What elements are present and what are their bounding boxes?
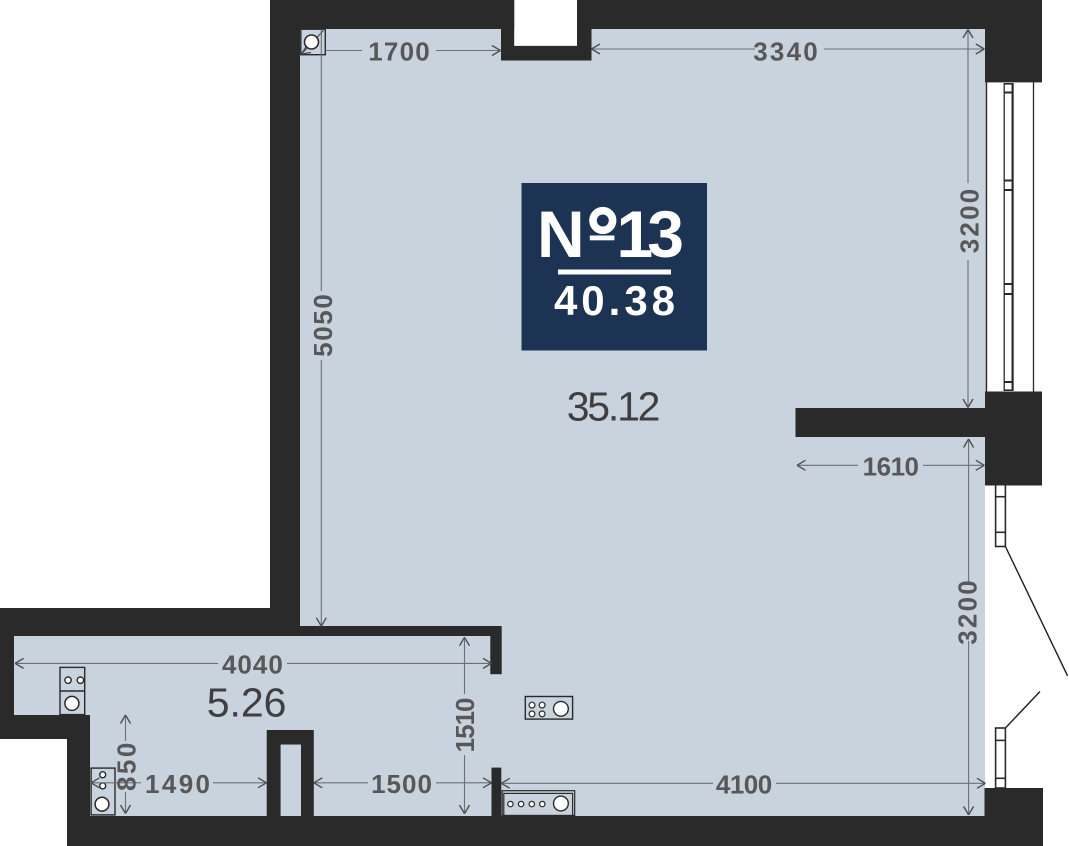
svg-text:3340: 3340 [753,36,820,66]
svg-text:1510: 1510 [450,698,480,752]
svg-text:4040: 4040 [222,650,284,680]
svg-text:4100: 4100 [716,770,772,800]
svg-text:1610: 1610 [863,452,919,482]
svg-text:40.38: 40.38 [554,277,679,324]
svg-text:N: N [537,197,585,271]
svg-text:5050: 5050 [308,293,338,357]
svg-text:1500: 1500 [371,769,433,799]
svg-text:3200: 3200 [955,187,985,254]
svg-text:1490: 1490 [145,769,212,799]
svg-text:35.12: 35.12 [567,383,659,429]
svg-text:1700: 1700 [368,37,431,67]
svg-text:850: 850 [112,740,142,791]
svg-text:13: 13 [617,197,683,271]
svg-text:3200: 3200 [953,578,983,645]
svg-text:5.26: 5.26 [207,679,287,725]
